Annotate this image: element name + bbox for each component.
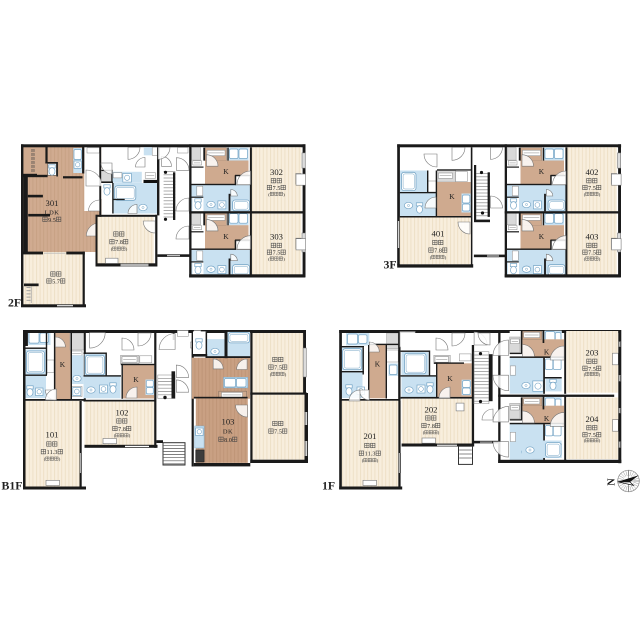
svg-text:K: K [544,414,550,423]
svg-text:K: K [223,167,229,176]
svg-text:303: 303 [270,232,283,242]
svg-text:K: K [449,192,455,201]
svg-text:8: 8 [123,427,126,433]
svg-text:DK: DK [223,429,233,436]
svg-text:2F: 2F [8,296,21,310]
svg-text:8: 8 [120,240,123,246]
svg-text:7: 7 [57,280,60,286]
svg-text:301: 301 [46,198,59,208]
svg-text:K: K [223,232,229,241]
svg-text:204: 204 [586,414,600,424]
svg-text:K: K [60,360,66,369]
svg-text:N: N [607,478,618,486]
svg-text:3F: 3F [384,258,397,272]
svg-text:5: 5 [277,251,280,257]
svg-text:5: 5 [53,218,56,224]
svg-text:K: K [375,360,381,369]
svg-text:201: 201 [364,431,377,441]
svg-text:5: 5 [593,433,596,439]
svg-text:402: 402 [586,167,599,177]
svg-text:K: K [447,374,453,383]
svg-text:1F: 1F [322,479,335,493]
svg-text:5: 5 [593,367,596,373]
svg-text:302: 302 [270,167,283,177]
svg-text:5: 5 [279,430,282,436]
svg-text:K: K [133,375,139,384]
svg-text:202: 202 [425,405,438,415]
svg-text:401: 401 [432,229,445,239]
svg-text:102: 102 [116,408,129,418]
svg-text:5: 5 [279,366,282,372]
svg-text:5: 5 [593,186,596,192]
svg-text:103: 103 [222,417,235,427]
svg-text:K: K [539,167,545,176]
svg-text:5: 5 [277,186,280,192]
svg-text:101: 101 [46,430,59,440]
svg-text:8: 8 [439,249,442,255]
svg-text:403: 403 [586,232,599,242]
svg-text:3: 3 [54,450,57,456]
svg-text:3: 3 [372,452,375,458]
svg-text:0: 0 [229,438,232,444]
svg-text:B1F: B1F [2,479,23,493]
svg-text:8: 8 [432,424,435,430]
svg-text:5: 5 [593,251,596,257]
svg-text:203: 203 [586,348,599,358]
svg-text:K: K [539,232,545,241]
svg-text:K: K [544,348,550,357]
